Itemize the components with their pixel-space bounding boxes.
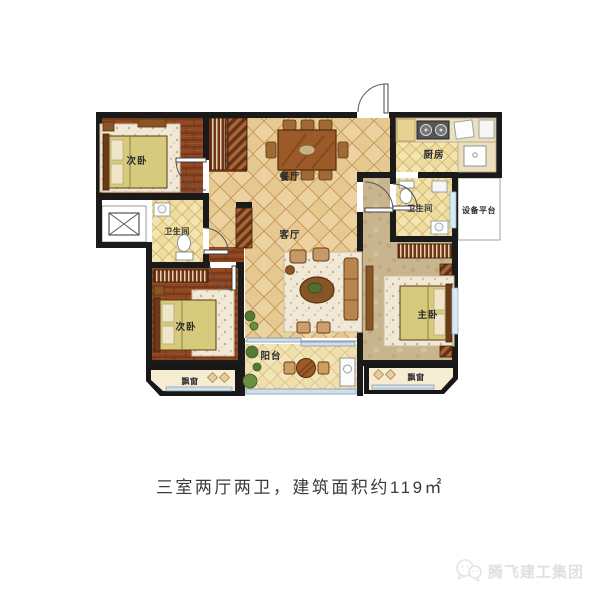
pillow [434, 289, 445, 310]
burner-dot [425, 129, 428, 132]
chair [301, 170, 314, 180]
master-window [452, 288, 458, 334]
brand-watermark: 腾飞建工集团 [453, 558, 584, 584]
bedroom-bl-door-leaf [232, 266, 236, 290]
basin-bowl [158, 205, 166, 213]
round-table [297, 359, 316, 378]
pillow [162, 304, 174, 322]
centerpiece [299, 145, 315, 155]
entry-door-leaf [384, 84, 388, 113]
nightstand [440, 264, 452, 275]
nightstand [154, 286, 164, 295]
sliding-door-panel [247, 338, 301, 342]
master-wardrobe [398, 244, 452, 258]
pillow [111, 140, 123, 160]
side-table [286, 266, 295, 275]
bay-window-left-label: 飘窗 [182, 376, 199, 386]
balcony-label: 阳台 [260, 350, 281, 362]
balcony-glass [246, 389, 356, 394]
pillow [111, 164, 123, 184]
living-room-label: 客厅 [278, 229, 300, 241]
bathroom-left-label: 卫生间 [164, 226, 190, 236]
chair [319, 170, 332, 180]
sink [464, 146, 486, 166]
bathroom-right-label: 卫生间 [407, 203, 433, 213]
corner-cabinet [479, 120, 494, 138]
hallway-lower-floor [209, 247, 244, 262]
chair [284, 362, 295, 374]
washing-machine [340, 358, 355, 386]
bed-headboard [154, 298, 160, 352]
wechat-chat-bubbles-icon [453, 558, 483, 584]
burner-dot [440, 129, 443, 132]
plant-icon [250, 322, 258, 330]
equipment-window [450, 192, 456, 228]
nightstand [103, 122, 114, 131]
armchair [313, 248, 329, 261]
master-bedroom-label: 主卧 [417, 309, 438, 321]
plant-icon [246, 346, 258, 358]
armchair [290, 250, 306, 263]
floorplan-page: 次卧 餐厅 客厅 厨房 卫生间 卫生间 设备平台 次卧 主卧 阳台 飘窗 飘窗 … [0, 0, 600, 600]
nightstand [440, 346, 452, 357]
kitchen-label: 厨房 [423, 149, 444, 161]
chair [301, 120, 314, 130]
partition-pillar [236, 208, 252, 248]
bedroom-top-left-label: 次卧 [126, 155, 147, 167]
bed-headboard [103, 134, 109, 190]
hall-cabinet [228, 118, 247, 170]
hall-wardrobe [210, 118, 225, 170]
bedroom-tl-door-leaf [176, 158, 206, 162]
chair [318, 362, 329, 374]
plant-icon [245, 311, 255, 321]
pillow [162, 326, 174, 344]
bay-window-right-glass [372, 385, 434, 389]
dining-room-label: 餐厅 [278, 171, 300, 183]
sofa [344, 258, 358, 320]
ottoman [317, 322, 330, 333]
basin-bowl [435, 223, 443, 231]
ottoman [297, 322, 310, 333]
cabinet [397, 119, 415, 141]
cabinet [432, 181, 447, 192]
bay-window-right-label: 飘窗 [408, 372, 425, 382]
tv-cabinet [366, 266, 373, 330]
bay-window-left-glass [166, 387, 232, 391]
bedroom-bottom-left-label: 次卧 [175, 321, 196, 333]
bed-headboard [446, 284, 452, 342]
entry-door-arc [358, 84, 386, 112]
plan-caption: 三室两厅两卫，建筑面积约119㎡ [0, 473, 600, 498]
floorplan-drawing: 次卧 餐厅 客厅 厨房 卫生间 卫生间 设备平台 次卧 主卧 阳台 飘窗 飘窗 [0, 0, 600, 600]
toilet-tank [176, 252, 193, 260]
toilet-icon [178, 235, 191, 252]
chair [266, 142, 276, 158]
brand-watermark-text: 腾飞建工集团 [488, 561, 584, 582]
master-door-leaf [365, 208, 393, 212]
bathroom-left-door-leaf [204, 250, 228, 254]
dresser [138, 119, 166, 127]
plant-icon [308, 283, 322, 293]
sliding-door-panel [301, 342, 355, 346]
bedroom-bl-wardrobe [154, 270, 208, 282]
plant-icon [253, 363, 261, 371]
cutting-board [454, 120, 474, 139]
chair [283, 120, 296, 130]
plant-icon [243, 374, 257, 388]
toilet-tank [399, 181, 414, 188]
chair [338, 142, 348, 158]
equipment-platform-label: 设备平台 [462, 205, 496, 215]
chair [319, 120, 332, 130]
